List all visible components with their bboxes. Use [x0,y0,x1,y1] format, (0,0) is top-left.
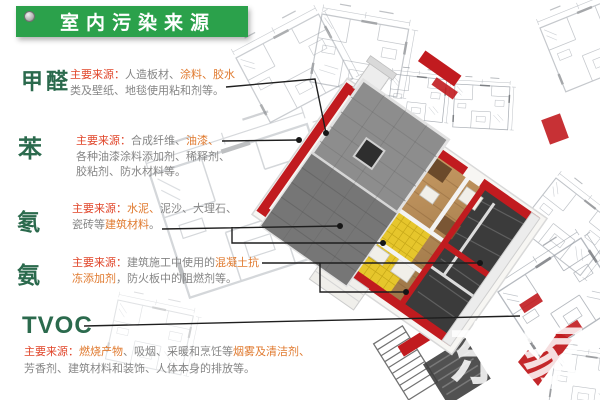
pointer-dot [477,260,483,266]
scene-illustration: 东家 [0,0,600,400]
watermark-text: 东家 [448,318,592,392]
leader-ben [222,140,299,141]
pointer-dot [337,223,343,229]
infographic-canvas: 东家 室内污染来源 甲醛 主要来源：人造板材、涂料、胶水 [0,0,600,400]
pointer-dot [323,130,329,136]
pointer-dot [380,240,386,246]
watermark-logo: 东家 [448,318,592,392]
pointer-dot [296,137,302,143]
leader-jiaquan [226,79,326,133]
pointer-dot [403,289,409,295]
